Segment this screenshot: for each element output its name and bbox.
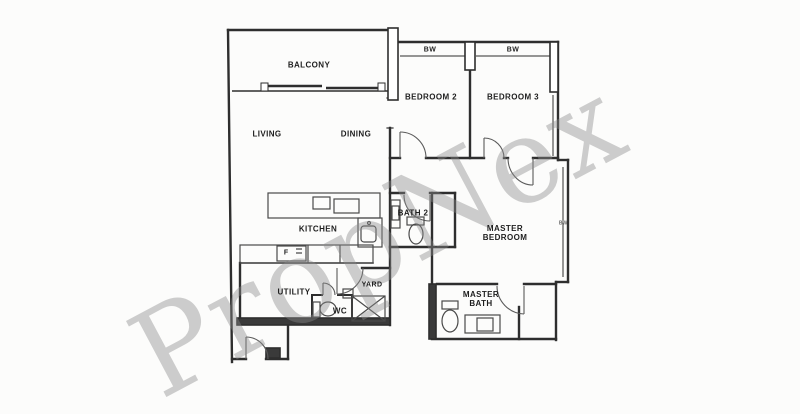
faucet-icon — [368, 222, 371, 225]
room-label-bedroom2: BEDROOM 2 — [405, 93, 457, 102]
room-label-bath2: BATH 2 — [398, 209, 429, 218]
room-label-bedroom3: BEDROOM 3 — [487, 93, 539, 102]
room-label-living: LIVING — [252, 130, 281, 139]
room-label-kitchen: KITCHEN — [299, 225, 337, 234]
toilet-cistern-icon — [442, 301, 458, 309]
bw-label-bedroom3: BW — [507, 46, 519, 55]
room-label-balcony: BALCONY — [288, 61, 330, 70]
bw-label-master: BW — [559, 220, 567, 229]
toilet-icon — [409, 224, 423, 244]
toilet-cistern-icon — [313, 302, 320, 317]
sink-basin-icon — [313, 197, 330, 209]
room-label-utility: UTILITY — [277, 288, 310, 297]
kitchen-sink-icon — [361, 226, 376, 242]
room-label-dining: DINING — [341, 130, 371, 139]
balcony-slider-icon — [232, 83, 396, 91]
bath2-fixtures — [391, 200, 424, 244]
toilet-icon — [442, 310, 458, 332]
window-lines — [400, 56, 563, 277]
room-label-master-bedroom: MASTER BEDROOM — [483, 224, 528, 242]
bw-label-bedroom2: BW — [424, 46, 436, 55]
room-label-wc: WC — [333, 307, 347, 316]
room-label-yard: YARD — [362, 281, 383, 290]
fridge-label: F — [284, 249, 288, 258]
wc-yard-fixtures — [313, 289, 385, 321]
floor-plan-drawing — [0, 0, 800, 414]
room-label-master-bath: MASTER BATH — [463, 290, 499, 308]
hob-icon — [334, 199, 359, 213]
floor-plan: PropNex BALCONY LIVING DINING BEDROOM 2 … — [0, 0, 800, 414]
